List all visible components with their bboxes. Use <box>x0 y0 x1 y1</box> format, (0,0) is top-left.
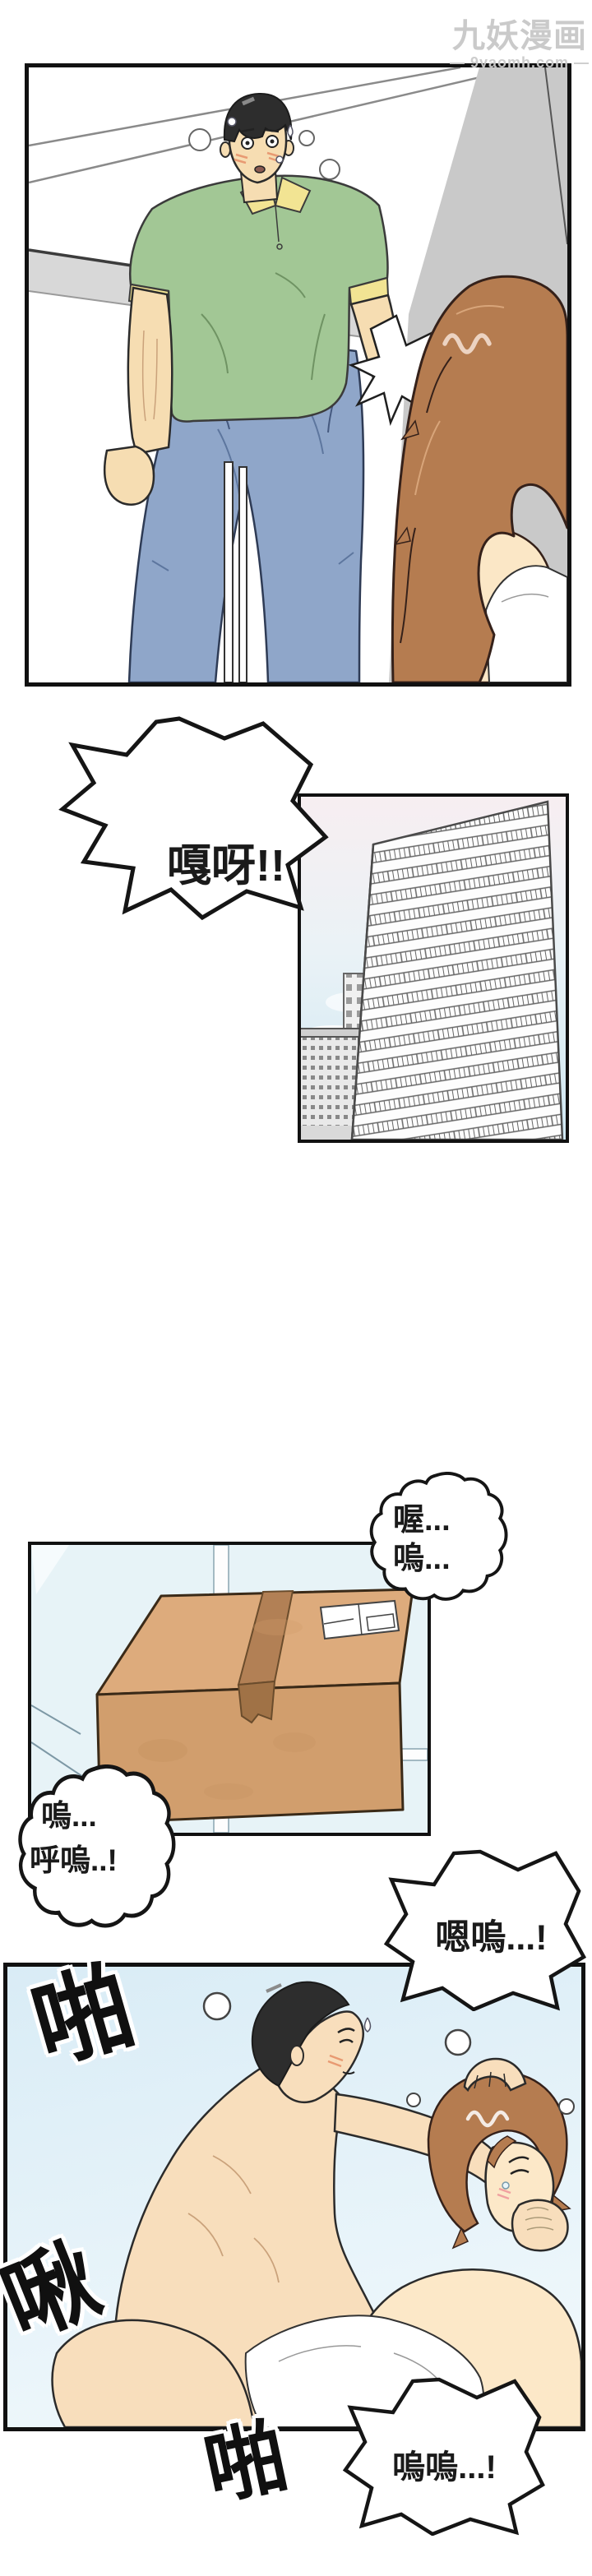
tape-strip <box>238 1681 275 1723</box>
building-art <box>301 797 566 1140</box>
sfx-slap-bottom: 啪 <box>198 2415 294 2510</box>
office-building <box>352 802 562 1140</box>
moan4-text: 嗚嗚...! <box>368 2440 520 2488</box>
moan2-line1: 嗚... <box>30 1794 161 1838</box>
moan1-line2: 嗚... <box>393 1540 500 1579</box>
panel-hallway-art <box>29 67 567 682</box>
watermark: 九妖漫画 — 9yaomh.com — <box>449 18 590 72</box>
moan3-text: 嗯嗚...! <box>407 1909 576 1960</box>
moan1-text: 喔... 嗚... <box>393 1501 500 1579</box>
comic-page: 九妖漫画 — 9yaomh.com — <box>0 0 592 2576</box>
moan2-text: 嗚... 呼嗚..! <box>30 1794 161 1883</box>
watermark-brand: 九妖漫画 <box>449 18 590 54</box>
watermark-site: — 9yaomh.com — <box>449 54 590 72</box>
panel-building-exterior <box>298 793 569 1143</box>
moan2-line2: 呼嗚..! <box>30 1838 161 1883</box>
shout-text: 嘎呀!! <box>132 829 321 894</box>
moan1-line1: 喔... <box>393 1501 500 1540</box>
man-figure <box>104 94 397 682</box>
panel-hallway-scene <box>25 63 571 687</box>
